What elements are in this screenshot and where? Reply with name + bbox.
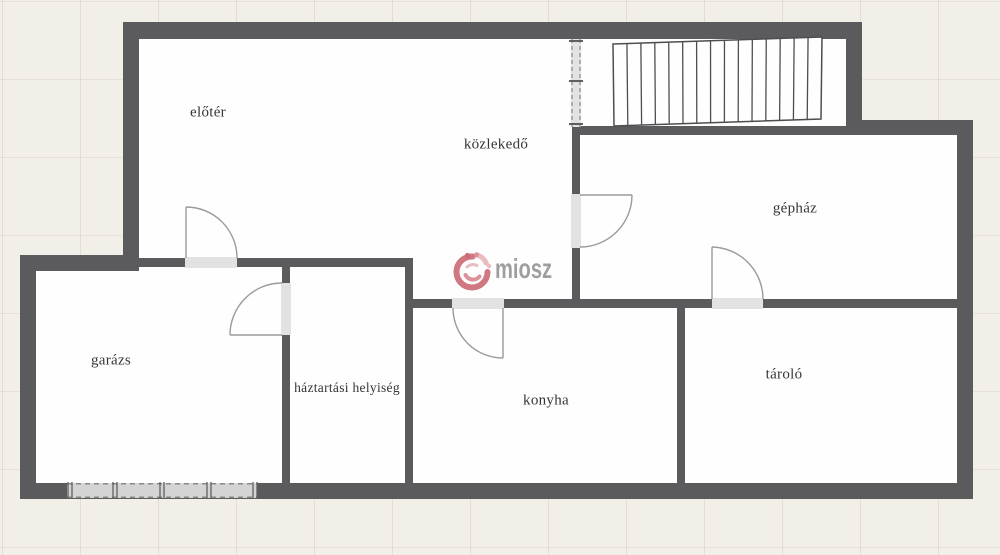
floor-area: [36, 267, 282, 483]
door-opening: [571, 194, 581, 248]
garage-door: [67, 483, 257, 498]
wall: [123, 22, 862, 39]
watermark-text: miosz: [495, 255, 552, 283]
stair-tread: [780, 38, 781, 120]
wall: [847, 120, 973, 135]
stair-tread: [807, 37, 808, 119]
watermark: miosz: [452, 252, 574, 292]
door-opening: [452, 298, 504, 309]
room-label-haztartasi: háztartási helyiség: [294, 380, 400, 396]
floor-area: [685, 308, 957, 483]
floorplan-stage: miosz előtérközlekedőgépházgarázsháztart…: [0, 0, 1000, 555]
wall: [123, 22, 139, 271]
stair-tread: [793, 38, 794, 120]
door-opening: [712, 298, 763, 309]
room-label-gephaz: gépház: [773, 201, 817, 218]
wall: [405, 258, 413, 483]
floor-area: [290, 267, 405, 483]
wall: [957, 120, 973, 499]
room-label-garazs: garázs: [91, 353, 131, 370]
wall: [677, 308, 685, 483]
wall: [580, 126, 847, 135]
wall: [846, 22, 862, 135]
room-label-tarolo: tároló: [766, 367, 803, 384]
wall: [139, 258, 412, 267]
wall: [20, 255, 139, 271]
stair-tread: [655, 43, 656, 125]
room-label-kozlekedo: közlekedő: [464, 137, 528, 154]
room-label-eloter: előtér: [190, 105, 226, 122]
miosz-logo-icon: [452, 252, 492, 292]
stair-tread: [627, 44, 628, 126]
room-label-konyha: konyha: [523, 393, 569, 410]
stair-tread: [641, 43, 642, 125]
door-opening: [281, 283, 291, 335]
door-opening: [185, 257, 237, 268]
floor-area: [580, 135, 957, 299]
staircase: [613, 37, 822, 126]
wall: [20, 255, 36, 499]
